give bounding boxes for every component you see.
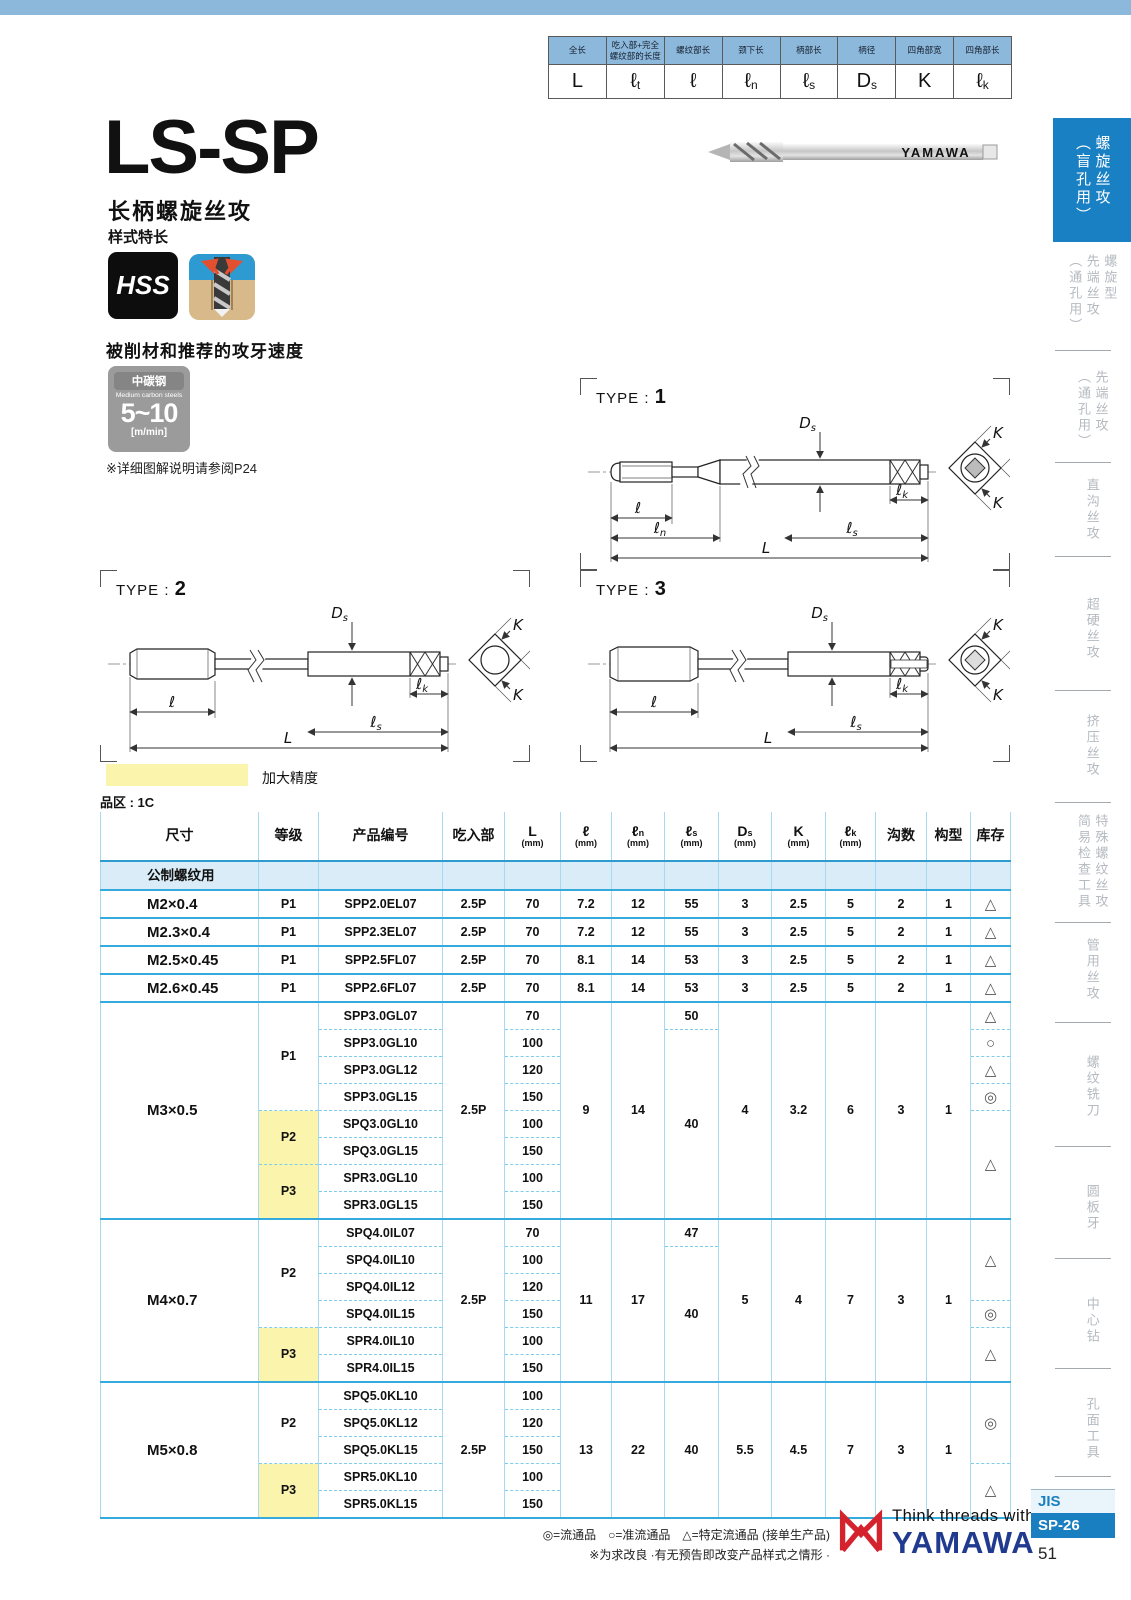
svg-text:ℓ: ℓ — [634, 499, 641, 517]
dim-legend-label: 柄径 — [838, 37, 895, 65]
photo-brand-text: YAMAWA — [901, 145, 970, 160]
table-subheader-cell — [826, 861, 876, 890]
yamawa-logo-text: Think threads with YAMAWA — [892, 1508, 1035, 1558]
cell-product-code: SPP2.0EL07 — [319, 890, 443, 918]
speed-heading: 被削材和推荐的攻牙速度 — [106, 337, 304, 362]
cell-neck-length: 12 — [612, 890, 665, 918]
table-row: M4×0.7P2SPQ4.0IL072.5P7011174754731△ — [101, 1219, 1011, 1247]
cell-overall-length: 150 — [505, 1355, 561, 1383]
cell-overall-length: 100 — [505, 1464, 561, 1491]
dim-legend-label: 四角部长 — [954, 37, 1011, 65]
cell-stock: ◎ — [971, 1084, 1011, 1111]
sidebar-divider — [1055, 1022, 1111, 1023]
cell-stock: △ — [971, 1111, 1011, 1220]
svg-text:ℓs: ℓs — [849, 713, 861, 733]
sidebar-divider — [1055, 462, 1111, 463]
sidebar-tab: 挤压丝攻 — [1053, 700, 1131, 792]
column-header: 构型 — [927, 812, 971, 861]
sidebar-divider — [1055, 1258, 1111, 1259]
cell-thread-length: 8.1 — [561, 946, 612, 974]
cell-product-code: SPQ4.0IL12 — [319, 1274, 443, 1301]
cell-overall-length: 70 — [505, 946, 561, 974]
cell-stock: ○ — [971, 1030, 1011, 1057]
cell-product-code: SPQ3.0GL15 — [319, 1138, 443, 1165]
cell-stock: △ — [971, 1057, 1011, 1084]
cell-product-code: SPQ5.0KL12 — [319, 1410, 443, 1437]
column-header: 尺寸 — [101, 812, 259, 861]
cell-overall-length: 70 — [505, 918, 561, 946]
sidebar-divider — [1055, 1476, 1111, 1477]
cell-thread-length: 11 — [561, 1219, 612, 1382]
cell-overall-length: 70 — [505, 974, 561, 1002]
cell-size: M5×0.8 — [101, 1382, 259, 1517]
table-subheader-cell — [772, 861, 826, 890]
dim-legend-label: 柄部长 — [781, 37, 838, 65]
dim-legend-symbol: ℓ — [665, 65, 722, 98]
type2-diagram: Ds ℓk ℓ ℓs L K K — [100, 594, 530, 760]
cell-neck-length: 12 — [612, 918, 665, 946]
svg-text:K: K — [993, 424, 1004, 442]
dim-legend-symbol: K — [896, 65, 953, 98]
catalog-page: 全长L吃入部+完全螺纹部的长度ℓt螺纹部长ℓ颈下长ℓn柄部长ℓs柄径Ds四角部宽… — [0, 0, 1131, 1600]
cell-form: 1 — [927, 974, 971, 1002]
table-subheader-cell — [561, 861, 612, 890]
cell-stock: ◎ — [971, 1382, 1011, 1464]
material-name: 中碳钢 — [114, 372, 184, 390]
svg-text:ℓs: ℓs — [845, 519, 857, 539]
sidebar-tab: 螺旋型先端丝攻（通孔用） — [1053, 252, 1131, 336]
cell-product-code: SPQ5.0KL10 — [319, 1382, 443, 1410]
cell-grade: P1 — [259, 890, 319, 918]
cell-square-length: 5 — [826, 890, 876, 918]
cell-stock: △ — [971, 974, 1011, 1002]
cell-form: 1 — [927, 918, 971, 946]
cell-size: M3×0.5 — [101, 1002, 259, 1219]
dim-legend-col: 颈下长ℓn — [722, 37, 780, 98]
column-header: 库存 — [971, 812, 1011, 861]
column-header: L(mm) — [505, 812, 561, 861]
cell-square-width: 2.5 — [772, 918, 826, 946]
sidebar-tab: 螺旋丝攻（盲孔用） — [1053, 118, 1131, 242]
cell-overall-length: 120 — [505, 1057, 561, 1084]
cell-overall-length: 100 — [505, 1328, 561, 1355]
svg-text:ℓn: ℓn — [653, 519, 667, 539]
cell-square-width: 2.5 — [772, 946, 826, 974]
brand-name: YAMAWA — [892, 1527, 1035, 1558]
sidebar: 螺旋丝攻（盲孔用）螺旋型先端丝攻（通孔用）先端丝攻（通孔用）直沟丝攻超硬丝攻挤压… — [1035, 0, 1131, 1600]
sidebar-tab: 先端丝攻（通孔用） — [1053, 360, 1131, 460]
svg-text:ℓ: ℓ — [650, 693, 657, 711]
cell-size: M2.6×0.45 — [101, 974, 259, 1002]
sidebar-tab: 圆板牙 — [1053, 1168, 1131, 1248]
svg-text:K: K — [993, 494, 1004, 512]
cell-square-length: 7 — [826, 1219, 876, 1382]
cell-grade: P1 — [259, 974, 319, 1002]
dim-legend-label: 颈下长 — [723, 37, 780, 65]
type3-diagram: Ds ℓk ℓ ℓs L K K — [580, 594, 1010, 760]
cell-thread-length: 7.2 — [561, 918, 612, 946]
precision-swatch — [106, 764, 248, 786]
sidebar-tab: 直沟丝攻 — [1053, 468, 1131, 552]
svg-text:K: K — [513, 616, 524, 634]
cell-shank-length: 53 — [665, 946, 719, 974]
cell-thread-length: 8.1 — [561, 974, 612, 1002]
cell-neck-length: 14 — [612, 974, 665, 1002]
cell-product-code: SPP2.6FL07 — [319, 974, 443, 1002]
cell-product-code: SPR4.0IL10 — [319, 1328, 443, 1355]
cell-square-length: 7 — [826, 1382, 876, 1517]
column-header: K(mm) — [772, 812, 826, 861]
svg-text:Ds: Ds — [799, 414, 816, 434]
dim-legend-col: 吃入部+完全螺纹部的长度ℓt — [606, 37, 664, 98]
cell-overall-length: 100 — [505, 1165, 561, 1192]
cell-thread-length: 13 — [561, 1382, 612, 1517]
hss-badge: HSS — [108, 252, 178, 319]
table-subheader-cell — [319, 861, 443, 890]
speed-unit: [m/min] — [108, 427, 190, 438]
svg-text:K: K — [513, 686, 524, 704]
cell-flutes: 2 — [876, 974, 927, 1002]
cell-grade: P3 — [259, 1328, 319, 1383]
dim-legend-col: 全长L — [549, 37, 606, 98]
cell-overall-length: 150 — [505, 1437, 561, 1464]
svg-text:ℓ: ℓ — [168, 693, 175, 711]
type1-box: TYPE : 1 Ds ℓk ℓ — [580, 378, 1010, 570]
cell-product-code: SPP3.0GL12 — [319, 1057, 443, 1084]
speed-range: 5~10 — [108, 399, 190, 427]
cell-product-code: SPP2.5FL07 — [319, 946, 443, 974]
cell-stock: △ — [971, 1219, 1011, 1301]
cell-size: M2.5×0.45 — [101, 946, 259, 974]
sidebar-divider — [1055, 922, 1111, 923]
table-subheader-cell — [443, 861, 505, 890]
sidebar-tab: 中心钻 — [1053, 1284, 1131, 1358]
table-subheader-cell — [612, 861, 665, 890]
svg-text:ℓs: ℓs — [369, 713, 381, 733]
cell-product-code: SPR4.0IL15 — [319, 1355, 443, 1383]
brand-tagline: Think threads with — [892, 1508, 1035, 1525]
dim-legend-label: 四角部宽 — [896, 37, 953, 65]
table-subheader-cell — [505, 861, 561, 890]
dimension-legend: 全长L吃入部+完全螺纹部的长度ℓt螺纹部长ℓ颈下长ℓn柄部长ℓs柄径Ds四角部宽… — [548, 36, 1012, 99]
dim-legend-col: 柄部长ℓs — [780, 37, 838, 98]
column-header: 沟数 — [876, 812, 927, 861]
cell-grade: P2 — [259, 1219, 319, 1328]
yamawa-logo-icon — [838, 1506, 884, 1558]
svg-text:Ds: Ds — [811, 604, 828, 624]
column-header: 吃入部 — [443, 812, 505, 861]
cell-product-code: SPP3.0GL15 — [319, 1084, 443, 1111]
cell-square-width: 3.2 — [772, 1002, 826, 1219]
dim-legend-col: 螺纹部长ℓ — [664, 37, 722, 98]
footer-legend: ◎=流通品 ○=准流通品 △=特定流通品 (接单生产品) ※为求改良 ·有无预告… — [420, 1526, 830, 1566]
dim-legend-symbol: ℓt — [607, 65, 664, 98]
page-title: LS-SP — [104, 110, 318, 186]
blind-hole-icon — [187, 252, 257, 322]
cell-form: 1 — [927, 1382, 971, 1517]
cell-product-code: SPQ4.0IL15 — [319, 1301, 443, 1328]
cell-overall-length: 120 — [505, 1410, 561, 1437]
cell-chamfer: 2.5P — [443, 1219, 505, 1382]
tap-photo: YAMAWA — [688, 130, 1010, 174]
dim-legend-label: 吃入部+完全螺纹部的长度 — [607, 37, 664, 65]
svg-text:ℓk: ℓk — [895, 675, 909, 695]
dim-legend-symbol: ℓs — [781, 65, 838, 98]
cell-overall-length: 120 — [505, 1274, 561, 1301]
svg-text:L: L — [284, 729, 292, 747]
column-header: 等级 — [259, 812, 319, 861]
cell-form: 1 — [927, 890, 971, 918]
dim-legend-col: 柄径Ds — [837, 37, 895, 98]
cell-shank-dia: 3 — [719, 974, 772, 1002]
cell-product-code: SPQ4.0IL10 — [319, 1247, 443, 1274]
series-label: 品区 : 1C — [100, 792, 154, 811]
column-header: ℓn(mm) — [612, 812, 665, 861]
cell-chamfer: 2.5P — [443, 974, 505, 1002]
cell-overall-length: 100 — [505, 1111, 561, 1138]
cell-grade: P1 — [259, 1002, 319, 1111]
dim-legend-symbol: L — [549, 65, 606, 98]
cell-neck-length: 17 — [612, 1219, 665, 1382]
table-row: M2×0.4P1SPP2.0EL072.5P707.2125532.5521△ — [101, 890, 1011, 918]
sidebar-tab: 特殊螺纹丝攻简易检查工具 — [1053, 806, 1131, 918]
table-subheader-cell — [876, 861, 927, 890]
cell-product-code: SPQ4.0IL07 — [319, 1219, 443, 1247]
cell-overall-length: 150 — [505, 1491, 561, 1518]
cell-shank-dia: 4 — [719, 1002, 772, 1219]
cell-flutes: 3 — [876, 1002, 927, 1219]
cell-overall-length: 70 — [505, 1219, 561, 1247]
svg-text:ℓk: ℓk — [415, 675, 429, 695]
sidebar-divider — [1055, 556, 1111, 557]
sidebar-divider — [1055, 802, 1111, 803]
cell-stock: ◎ — [971, 1301, 1011, 1328]
cell-overall-length: 150 — [505, 1192, 561, 1220]
sidebar-divider — [1055, 350, 1111, 351]
cell-product-code: SPQ3.0GL10 — [319, 1111, 443, 1138]
table-subheader-cell — [971, 861, 1011, 890]
dim-legend-symbol: ℓk — [954, 65, 1011, 98]
speed-note: ※详细图解说明请参阅P24 — [106, 458, 257, 477]
table-subheader: 公制螺纹用 — [101, 861, 259, 890]
cell-grade: P2 — [259, 1111, 319, 1165]
cell-overall-length: 150 — [505, 1138, 561, 1165]
cell-overall-length: 70 — [505, 1002, 561, 1030]
cell-stock: △ — [971, 946, 1011, 974]
cell-shank-length: 47 — [665, 1219, 719, 1247]
cell-stock: △ — [971, 918, 1011, 946]
table-subheader-cell — [719, 861, 772, 890]
cell-square-length: 6 — [826, 1002, 876, 1219]
cell-chamfer: 2.5P — [443, 946, 505, 974]
cell-shank-length: 55 — [665, 890, 719, 918]
dim-legend-label: 全长 — [549, 37, 606, 65]
table-subheader-cell — [927, 861, 971, 890]
column-header: ℓ(mm) — [561, 812, 612, 861]
type3-box: TYPE : 3 Ds ℓk ℓ ℓs — [580, 570, 1010, 762]
type2-box: TYPE : 2 Ds ℓk ℓ ℓs — [100, 570, 530, 762]
dim-legend-col: 四角部长ℓk — [953, 37, 1011, 98]
sidebar-tab: 螺纹铣刀 — [1053, 1040, 1131, 1134]
cell-product-code: SPR3.0GL15 — [319, 1192, 443, 1220]
column-header: Ds(mm) — [719, 812, 772, 861]
cell-square-width: 2.5 — [772, 890, 826, 918]
cell-size: M4×0.7 — [101, 1219, 259, 1382]
cell-product-code: SPR3.0GL10 — [319, 1165, 443, 1192]
cell-stock: △ — [971, 1002, 1011, 1030]
cell-stock: △ — [971, 1328, 1011, 1383]
column-header: ℓs(mm) — [665, 812, 719, 861]
svg-text:L: L — [764, 729, 772, 747]
cell-square-length: 5 — [826, 918, 876, 946]
cell-shank-dia: 3 — [719, 918, 772, 946]
cell-product-code: SPP3.0GL10 — [319, 1030, 443, 1057]
cell-chamfer: 2.5P — [443, 1382, 505, 1517]
cell-product-code: SPR5.0KL10 — [319, 1464, 443, 1491]
cell-chamfer: 2.5P — [443, 890, 505, 918]
table-row: M3×0.5P1SPP3.0GL072.5P709145043.2631△ — [101, 1002, 1011, 1030]
svg-text:Ds: Ds — [331, 604, 348, 624]
svg-text:L: L — [762, 539, 770, 557]
sidebar-divider — [1055, 1368, 1111, 1369]
cell-overall-length: 150 — [505, 1301, 561, 1328]
cell-grade: P3 — [259, 1165, 319, 1220]
cell-overall-length: 100 — [505, 1247, 561, 1274]
table-subheader-cell — [665, 861, 719, 890]
table-row: M2.3×0.4P1SPP2.3EL072.5P707.2125532.5521… — [101, 918, 1011, 946]
cell-square-width: 4.5 — [772, 1382, 826, 1517]
cell-overall-length: 150 — [505, 1084, 561, 1111]
sidebar-tab: 超硬丝攻 — [1053, 588, 1131, 670]
cell-shank-length: 55 — [665, 918, 719, 946]
table-subheader-cell — [259, 861, 319, 890]
cell-square-length: 5 — [826, 974, 876, 1002]
table-row: M2.5×0.45P1SPP2.5FL072.5P708.1145332.552… — [101, 946, 1011, 974]
dim-legend-label: 螺纹部长 — [665, 37, 722, 65]
dim-legend-symbol: Ds — [838, 65, 895, 98]
cell-shank-dia: 3 — [719, 890, 772, 918]
type1-diagram: Ds ℓk ℓ ℓn ℓs L K K — [580, 402, 1010, 568]
cell-neck-length: 14 — [612, 946, 665, 974]
cell-chamfer: 2.5P — [443, 1002, 505, 1219]
cell-shank-dia: 5.5 — [719, 1382, 772, 1517]
cell-grade: P3 — [259, 1464, 319, 1518]
cell-form: 1 — [927, 1219, 971, 1382]
cell-neck-length: 22 — [612, 1382, 665, 1517]
cell-stock: △ — [971, 890, 1011, 918]
cell-thread-length: 9 — [561, 1002, 612, 1219]
table-row: M5×0.8P2SPQ5.0KL102.5P1001322405.54.5731… — [101, 1382, 1011, 1410]
cell-thread-length: 7.2 — [561, 890, 612, 918]
sidebar-divider — [1055, 690, 1111, 691]
cell-overall-length: 100 — [505, 1382, 561, 1410]
cell-flutes: 2 — [876, 918, 927, 946]
cell-product-code: SPP2.3EL07 — [319, 918, 443, 946]
cell-form: 1 — [927, 1002, 971, 1219]
style-note: 样式特长 — [108, 226, 168, 247]
cell-form: 1 — [927, 946, 971, 974]
cell-product-code: SPP3.0GL07 — [319, 1002, 443, 1030]
cell-shank-length: 40 — [665, 1030, 719, 1220]
cell-grade: P1 — [259, 918, 319, 946]
cell-size: M2×0.4 — [101, 890, 259, 918]
footer-note: ※为求改良 ·有无预告即改变产品样式之情形 · — [420, 1546, 830, 1566]
cell-chamfer: 2.5P — [443, 918, 505, 946]
cell-flutes: 3 — [876, 1219, 927, 1382]
page-subtitle: 长柄螺旋丝攻 — [108, 194, 252, 226]
dim-legend-symbol: ℓn — [723, 65, 780, 98]
cell-flutes: 2 — [876, 946, 927, 974]
cell-flutes: 3 — [876, 1382, 927, 1517]
cell-square-length: 5 — [826, 946, 876, 974]
cell-grade: P1 — [259, 946, 319, 974]
spec-table-wrap: 尺寸等级产品编号吃入部L(mm)ℓ(mm)ℓn(mm)ℓs(mm)Ds(mm)K… — [100, 812, 1011, 1519]
cell-size: M2.3×0.4 — [101, 918, 259, 946]
cell-shank-dia: 3 — [719, 946, 772, 974]
cell-square-width: 4 — [772, 1219, 826, 1382]
cell-shank-dia: 5 — [719, 1219, 772, 1382]
cell-overall-length: 100 — [505, 1030, 561, 1057]
column-header: 产品编号 — [319, 812, 443, 861]
cell-flutes: 2 — [876, 890, 927, 918]
cell-shank-length: 40 — [665, 1382, 719, 1517]
stock-symbols-legend: ◎=流通品 ○=准流通品 △=特定流通品 (接单生产品) — [420, 1526, 830, 1546]
cell-neck-length: 14 — [612, 1002, 665, 1219]
cell-overall-length: 70 — [505, 890, 561, 918]
dim-legend-col: 四角部宽K — [895, 37, 953, 98]
top-band — [0, 0, 1131, 15]
speed-box: 中碳钢 Medium carbon steels 5~10 [m/min] — [108, 366, 190, 452]
cell-grade: P2 — [259, 1382, 319, 1464]
precision-swatch-label: 加大精度 — [262, 768, 318, 788]
svg-text:K: K — [993, 616, 1004, 634]
sidebar-tab: 孔面工具 — [1053, 1386, 1131, 1472]
sidebar-divider — [1055, 1146, 1111, 1147]
cell-shank-length: 40 — [665, 1247, 719, 1383]
svg-text:K: K — [993, 686, 1004, 704]
table-row: M2.6×0.45P1SPP2.6FL072.5P708.1145332.552… — [101, 974, 1011, 1002]
spec-table: 尺寸等级产品编号吃入部L(mm)ℓ(mm)ℓn(mm)ℓs(mm)Ds(mm)K… — [100, 812, 1011, 1517]
sidebar-tab: 管用丝攻 — [1053, 930, 1131, 1010]
column-header: ℓk(mm) — [826, 812, 876, 861]
cell-shank-length: 50 — [665, 1002, 719, 1030]
cell-shank-length: 53 — [665, 974, 719, 1002]
cell-product-code: SPR5.0KL15 — [319, 1491, 443, 1518]
cell-square-width: 2.5 — [772, 974, 826, 1002]
cell-product-code: SPQ5.0KL15 — [319, 1437, 443, 1464]
